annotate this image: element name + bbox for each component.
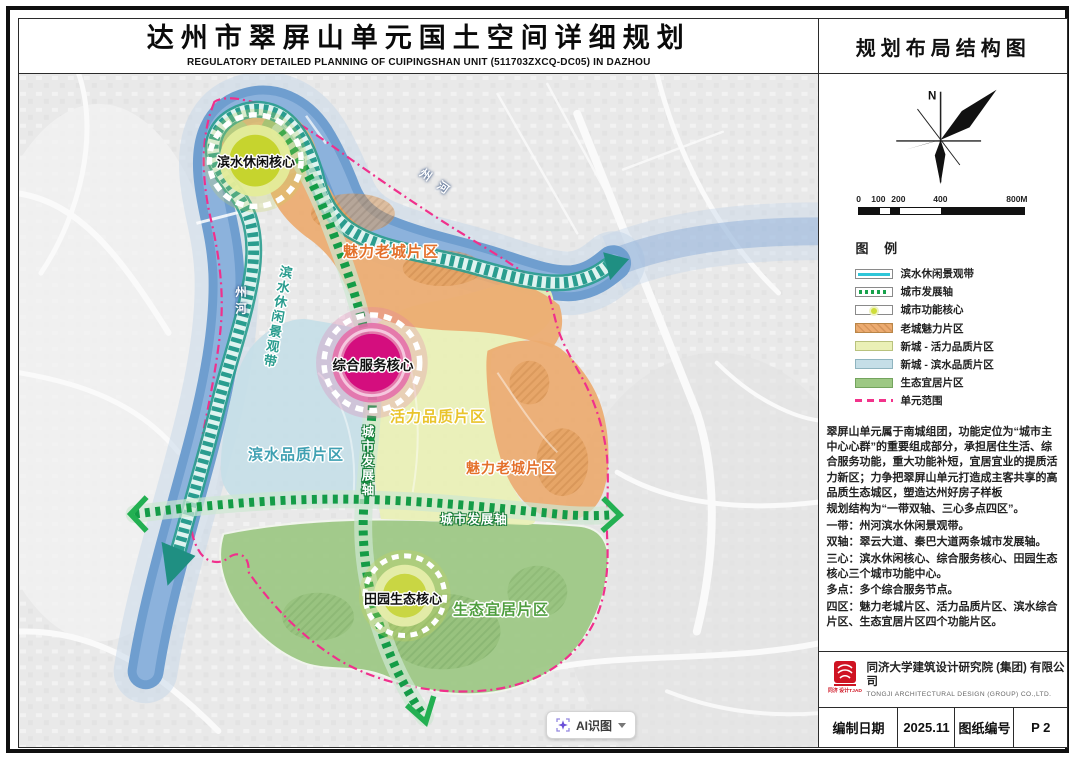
scale-tick: 0	[856, 194, 861, 204]
scale-tick: 400	[933, 194, 947, 204]
label-axis-vertical: 城市发展轴	[358, 425, 377, 498]
firm-name-en: TONGJI ARCHITECTURAL DESIGN (GROUP) CO.,…	[866, 691, 1067, 698]
sheet-number-label: 图纸编号	[955, 708, 1014, 747]
sheet-info-row: 编制日期 2025.11 图纸编号 P 2	[819, 707, 1067, 747]
legend-swatch-development-axis	[855, 287, 893, 297]
logo-caption: 同济 设计TJAD	[828, 686, 862, 693]
scale-tick: 100	[871, 194, 885, 204]
page-title: 达州市翠屏山单元国土空间详细规划	[147, 24, 691, 54]
date-value: 2025.11	[898, 708, 955, 747]
label-waterfront-zone: 滨水品质片区	[248, 444, 344, 465]
legend-item: 单元范围	[855, 393, 1067, 408]
description-line: 翠屏山单元属于南城组团，功能定位为“城市主中心心群”的重要组成部分，承担居住生活…	[826, 425, 1059, 502]
label-river-left: 州河	[232, 286, 248, 319]
sheet: 达州市翠屏山单元国土空间详细规划 REGULATORY DETAILED PLA…	[18, 18, 1068, 748]
planning-map: 滨水休闲核心 魅力老城片区 综合服务核心 活力品质片区 滨水品质片区 魅力老城片…	[19, 74, 818, 747]
planning-description: 翠屏山单元属于南城组团，功能定位为“城市主中心心群”的重要组成部分，承担居住生活…	[826, 425, 1059, 632]
legend-swatch-waterfront-belt	[855, 269, 893, 279]
legend-item: 新城 - 活力品质片区	[855, 339, 1067, 354]
legend-swatch-eco-livable	[855, 378, 893, 388]
info-panel: 规划布局结构图 N 0 100 200 400	[819, 19, 1067, 747]
scale-bar-segments	[858, 207, 1025, 215]
description-line: 多点：多个综合服务节点。	[826, 583, 1059, 598]
panel-body: N 0 100 200 400 800M 图 例 滨水休闲景观带 城市发展轴	[819, 74, 1067, 651]
label-old-town-north: 魅力老城片区	[343, 241, 439, 262]
legend-item: 老城魅力片区	[855, 321, 1067, 336]
legend-item: 新城 - 滨水品质片区	[855, 357, 1067, 372]
ai-recognize-button[interactable]: AI识图	[546, 711, 636, 739]
scale-bar: 0 100 200 400 800M	[858, 194, 1028, 224]
legend-item: 生态宜居片区	[855, 375, 1067, 390]
label-rural-core: 田园生态核心	[364, 589, 442, 608]
tongji-logo: 同济 设计TJAD	[831, 660, 858, 700]
description-line: 四区：魅力老城片区、活力品质片区、滨水综合片区、生态宜居片区四个功能片区。	[826, 600, 1059, 631]
ai-button-label: AI识图	[576, 717, 612, 734]
legend-title: 图 例	[855, 238, 1067, 257]
legend-swatch-unit-boundary	[855, 396, 893, 406]
map-column: 达州市翠屏山单元国土空间详细规划 REGULATORY DETAILED PLA…	[19, 19, 819, 747]
north-arrow: N	[819, 84, 1067, 192]
description-line: 一带：州河滨水休闲景观带。	[826, 519, 1059, 534]
ai-sparkle-icon	[556, 718, 570, 732]
description-line: 三心：滨水休闲核心、综合服务核心、田园生态核心三个城市功能中心。	[826, 552, 1059, 583]
sheet-number-value: P 2	[1014, 708, 1067, 747]
label-riverside-core: 滨水休闲核心	[217, 152, 295, 171]
design-firm-block: 同济 设计TJAD 同济大学建筑设计研究院 (集团) 有限公司 TONGJI A…	[819, 651, 1067, 707]
legend-swatch-function-core	[855, 305, 893, 315]
sheet-header: 达州市翠屏山单元国土空间详细规划 REGULATORY DETAILED PLA…	[19, 19, 818, 74]
legend-item: 城市功能核心	[855, 302, 1067, 317]
map-sheet-name: 规划布局结构图	[819, 19, 1067, 74]
legend-item: 城市发展轴	[855, 284, 1067, 299]
north-label: N	[928, 90, 936, 102]
date-label: 编制日期	[819, 708, 898, 747]
description-line: 双轴：翠云大道、秦巴大道两条城市发展轴。	[826, 535, 1059, 550]
chevron-down-icon	[618, 723, 626, 728]
legend-swatch-vitality	[855, 341, 893, 351]
legend-swatch-old-town	[855, 323, 893, 333]
legend-item: 滨水休闲景观带	[855, 266, 1067, 281]
legend: 图 例 滨水休闲景观带 城市发展轴 城市功能核心 老城魅力片区 新城 - 活力品…	[819, 224, 1067, 412]
label-service-core: 综合服务核心	[333, 354, 414, 374]
scale-tick: 800M	[1006, 194, 1027, 204]
label-old-town-east: 魅力老城片区	[466, 458, 556, 478]
label-axis-horizontal: 城市发展轴	[440, 509, 508, 528]
page-subtitle: REGULATORY DETAILED PLANNING OF CUIPINGS…	[187, 57, 651, 68]
label-vitality-zone: 活力品质片区	[390, 406, 486, 427]
label-eco-zone: 生态宜居片区	[453, 599, 549, 620]
firm-name-cn: 同济大学建筑设计研究院 (集团) 有限公司	[866, 661, 1067, 690]
description-line: 规划结构为“一带双轴、三心多点四区”。	[826, 502, 1059, 517]
legend-swatch-waterfront-quality	[855, 359, 893, 369]
scale-tick: 200	[891, 194, 905, 204]
